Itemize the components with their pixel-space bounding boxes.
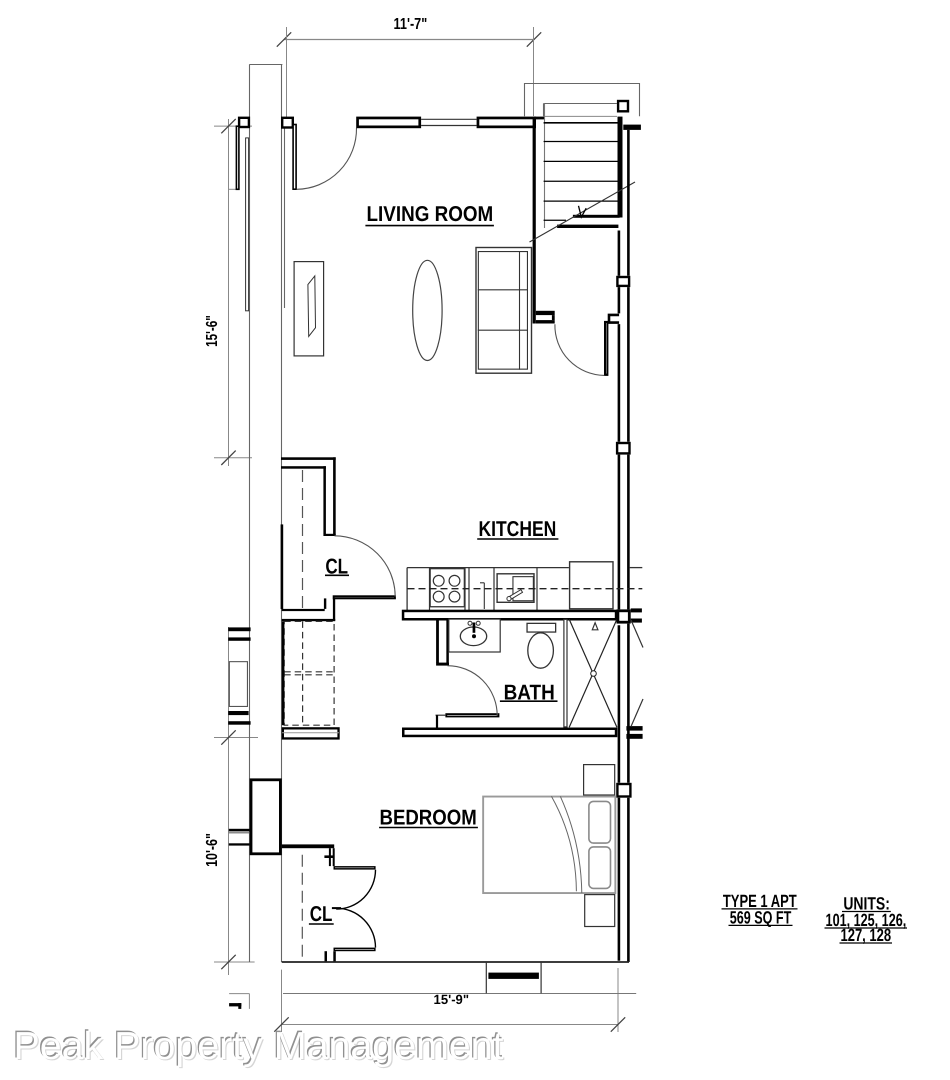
svg-text:10'-6": 10'-6" bbox=[204, 833, 221, 867]
svg-text:11'-7": 11'-7" bbox=[394, 16, 428, 33]
svg-text:CL: CL bbox=[310, 902, 333, 926]
svg-text:KITCHEN: KITCHEN bbox=[478, 517, 556, 541]
svg-text:Peak Property Management: Peak Property Management bbox=[14, 1025, 504, 1068]
svg-text:127, 128: 127, 128 bbox=[841, 925, 892, 945]
svg-text:15'-6": 15'-6" bbox=[204, 315, 221, 347]
svg-text:15'-9": 15'-9" bbox=[434, 992, 470, 1007]
svg-text:569 SQ FT: 569 SQ FT bbox=[730, 907, 792, 927]
svg-text:BEDROOM: BEDROOM bbox=[380, 806, 477, 830]
svg-text:LIVING ROOM: LIVING ROOM bbox=[367, 202, 494, 226]
